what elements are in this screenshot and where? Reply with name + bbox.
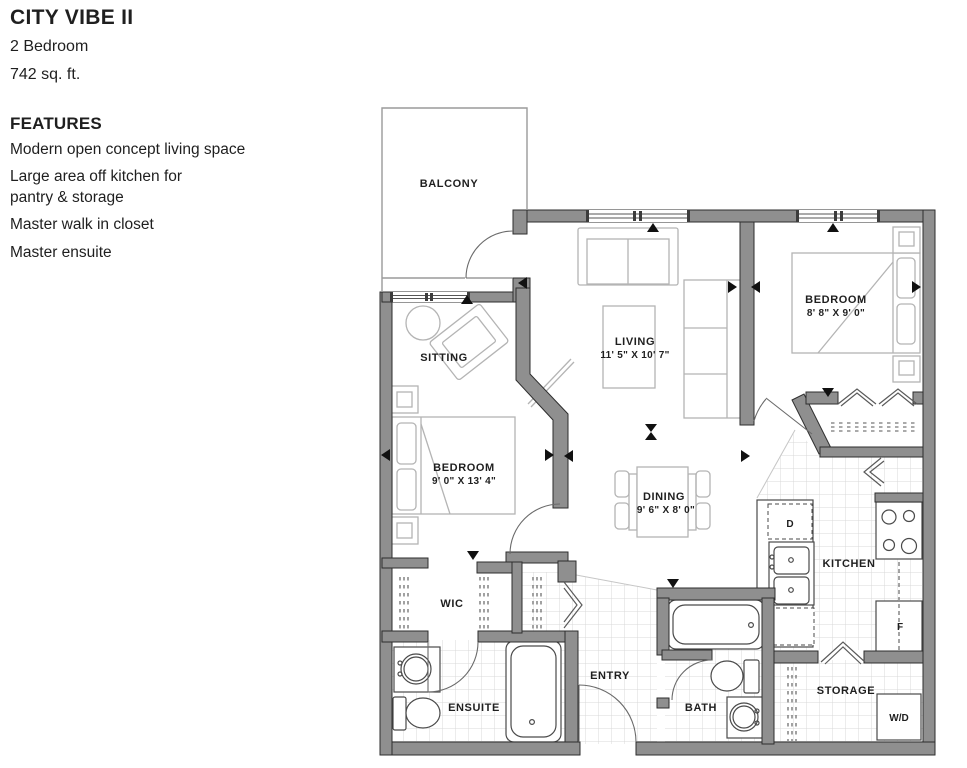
- label-bedroom-right: BEDROOM: [805, 294, 867, 306]
- label-living-dims: 11' 5" X 10' 7": [600, 350, 669, 361]
- balcony-door: [466, 231, 513, 278]
- label-washer-dryer: W/D: [889, 713, 908, 724]
- label-bath: BATH: [685, 702, 717, 714]
- label-storage: STORAGE: [817, 685, 875, 697]
- label-bedroom-left: BEDROOM: [433, 462, 495, 474]
- label-dining: DINING: [643, 491, 685, 503]
- wic-rod-left: [400, 577, 408, 629]
- stove: [876, 502, 922, 559]
- wall-bottom-right: [636, 742, 935, 755]
- label-sitting: SITTING: [420, 352, 468, 364]
- wall-partition: [740, 222, 754, 425]
- sitting-chair: [429, 303, 509, 380]
- label-bedroom-left-dims: 9' 0" X 13' 4": [432, 476, 496, 487]
- living-window: [586, 210, 690, 222]
- label-entry: ENTRY: [590, 670, 630, 682]
- ensuite-toilet: [393, 697, 440, 730]
- ensuite-vanity: [394, 647, 440, 692]
- wall-right: [923, 210, 935, 755]
- label-bedroom-right-dims: 8' 8" X 9' 0": [807, 308, 865, 319]
- sitting-window: [390, 292, 470, 302]
- label-ensuite: ENSUITE: [448, 702, 500, 714]
- ensuite-tub: [506, 641, 561, 742]
- label-living: LIVING: [615, 336, 655, 348]
- bath-sink: [727, 697, 763, 738]
- sofa: [578, 228, 678, 285]
- wall-left: [380, 292, 392, 755]
- bath-tub: [668, 600, 764, 649]
- master-bedroom-door: [510, 504, 560, 554]
- label-balcony: BALCONY: [420, 178, 479, 190]
- label-dining-dims: 9' 6" X 8' 0": [637, 505, 695, 516]
- sitting-table: [406, 306, 440, 340]
- wall-bath-top: [657, 588, 775, 600]
- label-kitchen: KITCHEN: [822, 558, 875, 570]
- floorplan-page: { "header": { "title": "CITY VIBE II", "…: [0, 0, 967, 768]
- label-dishwasher: D: [786, 519, 793, 530]
- balcony-outline: [382, 108, 527, 292]
- side-couch: [684, 280, 741, 418]
- label-wic: WIC: [440, 598, 463, 610]
- bath-toilet: [711, 660, 759, 693]
- bedroom-window: [796, 210, 880, 222]
- wall-divider: [516, 288, 568, 508]
- closet-bifold-doors: [838, 389, 917, 406]
- wall-bottom-left: [380, 742, 580, 755]
- wic-rod-right: [480, 577, 488, 629]
- floor-plan: BALCONY SITTING LIVING 11' 5" X 10' 7" B…: [0, 0, 967, 768]
- bedroom-closet-rod: [831, 423, 916, 431]
- label-fridge: F: [897, 622, 903, 633]
- wall-bath-right: [762, 598, 774, 744]
